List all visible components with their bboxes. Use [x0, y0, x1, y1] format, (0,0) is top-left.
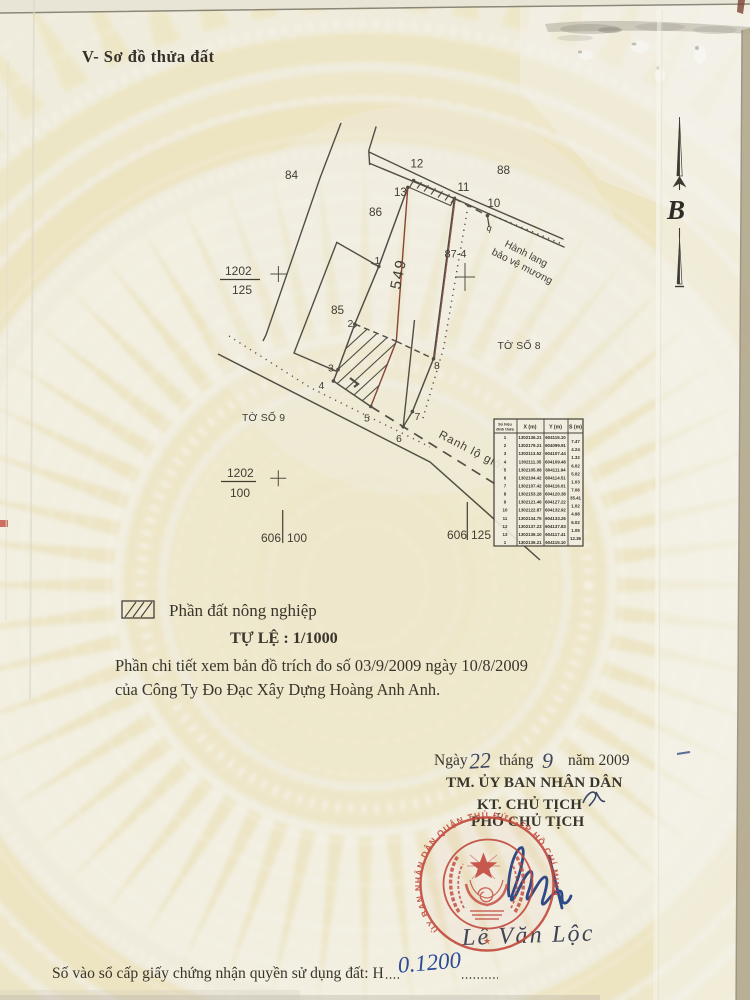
svg-text:1302121.46: 1302121.46 — [518, 500, 542, 505]
svg-text:Số hiệu: Số hiệu — [498, 423, 512, 427]
svg-text:B: B — [666, 195, 685, 225]
svg-text:tháng: tháng — [499, 752, 534, 769]
svg-text:6.02: 6.02 — [571, 520, 580, 525]
svg-text:7.06: 7.06 — [571, 488, 580, 493]
svg-text:1302122.87: 1302122.87 — [518, 508, 542, 513]
svg-text:7: 7 — [415, 411, 421, 423]
svg-text:1302136.10: 1302136.10 — [518, 532, 542, 537]
svg-text:9: 9 — [542, 748, 553, 773]
svg-text:604132.92: 604132.92 — [545, 508, 566, 513]
svg-text:2: 2 — [348, 318, 354, 330]
svg-text:1302107.42: 1302107.42 — [518, 484, 542, 489]
svg-text:22: 22 — [468, 747, 492, 773]
svg-text:13: 13 — [394, 187, 407, 199]
svg-text:1.32: 1.32 — [571, 455, 580, 460]
svg-text:1302137.23: 1302137.23 — [518, 524, 542, 529]
svg-text:1302179.21: 1302179.21 — [518, 443, 542, 448]
svg-text:1302136.21: 1302136.21 — [518, 435, 542, 440]
svg-text:1.03: 1.03 — [571, 479, 580, 484]
svg-text:13: 13 — [503, 532, 508, 537]
svg-text:12: 12 — [503, 524, 508, 529]
svg-text:88: 88 — [497, 163, 511, 177]
svg-text:★: ★ — [483, 936, 491, 946]
svg-text:604107.44: 604107.44 — [545, 451, 566, 456]
svg-text:604120.38: 604120.38 — [545, 492, 566, 497]
svg-text:604109.48: 604109.48 — [545, 459, 566, 464]
svg-text:125: 125 — [471, 528, 491, 542]
svg-text:604115.10: 604115.10 — [545, 435, 566, 440]
svg-text:1302136.21: 1302136.21 — [518, 540, 542, 545]
svg-text:11: 11 — [503, 516, 508, 521]
svg-text:1302105.08: 1302105.08 — [518, 467, 542, 472]
svg-text:100: 100 — [287, 531, 307, 545]
svg-text:6: 6 — [396, 433, 402, 445]
svg-text:TỜ SỐ 8: TỜ SỐ 8 — [498, 338, 541, 352]
svg-text:X (m): X (m) — [524, 425, 537, 431]
svg-text:1302113.52: 1302113.52 — [519, 451, 543, 456]
svg-text:S (m): S (m) — [569, 425, 582, 431]
svg-text:1302134.75: 1302134.75 — [518, 516, 542, 521]
svg-text:35.41: 35.41 — [570, 496, 582, 501]
svg-text:4.24: 4.24 — [571, 447, 580, 452]
svg-text:3: 3 — [328, 363, 334, 375]
svg-text:Ngày: Ngày — [434, 752, 468, 769]
svg-text:5: 5 — [364, 413, 370, 425]
svg-text:100: 100 — [230, 486, 250, 500]
svg-text:604099.91: 604099.91 — [545, 443, 566, 448]
svg-text:1302104.42: 1302104.42 — [518, 475, 542, 480]
svg-text:Phần đất nông nghiệp: Phần đất nông nghiệp — [169, 601, 317, 620]
svg-text:604133.26: 604133.26 — [545, 516, 566, 521]
svg-text:12.36: 12.36 — [570, 536, 582, 541]
svg-text:đỉnh thửa: đỉnh thửa — [496, 428, 514, 432]
svg-text:6.02: 6.02 — [571, 463, 580, 468]
svg-text:1.02: 1.02 — [571, 504, 580, 509]
svg-text:1202: 1202 — [225, 264, 252, 278]
svg-text:85: 85 — [331, 303, 345, 317]
svg-text:4.98: 4.98 — [571, 512, 580, 517]
svg-text:1: 1 — [375, 255, 381, 267]
svg-text:5.02: 5.02 — [571, 471, 580, 476]
svg-text:Phần chi tiết xem bản đồ trích: Phần chi tiết xem bản đồ trích đo số 03/… — [115, 656, 528, 675]
svg-text:TỜ SỐ 9: TỜ SỐ 9 — [242, 410, 285, 424]
svg-text:7.47: 7.47 — [571, 439, 580, 444]
svg-text:125: 125 — [232, 283, 252, 297]
svg-text:1202: 1202 — [227, 466, 254, 480]
svg-text:84: 84 — [285, 168, 299, 182]
svg-text:604111.94: 604111.94 — [545, 467, 566, 472]
svg-text:604114.51: 604114.51 — [545, 475, 566, 480]
svg-text:của Công Ty Đo Đạc Xây Dựng Ho: của Công Ty Đo Đạc Xây Dựng Hoàng Anh An… — [115, 680, 440, 699]
svg-text:năm 2009: năm 2009 — [568, 752, 630, 769]
svg-text:604117.41: 604117.41 — [545, 532, 566, 537]
svg-text:1302153.28: 1302153.28 — [518, 492, 542, 497]
svg-text:87-4: 87-4 — [445, 249, 467, 261]
svg-text:4: 4 — [319, 380, 325, 392]
svg-text:10: 10 — [503, 508, 508, 513]
svg-text:12: 12 — [411, 159, 424, 171]
svg-text:604137.83: 604137.83 — [545, 524, 566, 529]
svg-text:1302111.35: 1302111.35 — [519, 459, 542, 464]
svg-text:TM. ỦY BAN NHÂN DÂN: TM. ỦY BAN NHÂN DÂN — [446, 774, 622, 791]
svg-text:606: 606 — [261, 531, 281, 545]
svg-text:10: 10 — [488, 198, 501, 210]
svg-text:Y (m): Y (m) — [549, 425, 562, 431]
svg-text:604116.01: 604116.01 — [545, 484, 566, 489]
svg-text:86: 86 — [369, 205, 383, 219]
svg-text:604127.22: 604127.22 — [545, 500, 566, 505]
svg-text:1.05: 1.05 — [571, 528, 580, 533]
svg-text:TỰ LỆ : 1/1000: TỰ LỆ : 1/1000 — [230, 629, 338, 647]
svg-text:604115.10: 604115.10 — [545, 540, 566, 545]
svg-text:11: 11 — [458, 182, 470, 194]
svg-text:Số vào sổ cấp giấy chứng nhận: Số vào sổ cấp giấy chứng nhận quyền sử d… — [52, 965, 384, 982]
svg-text:8: 8 — [434, 360, 440, 372]
svg-text:V- Sơ đồ thửa đất: V- Sơ đồ thửa đất — [82, 47, 215, 66]
svg-text:606: 606 — [447, 528, 467, 542]
